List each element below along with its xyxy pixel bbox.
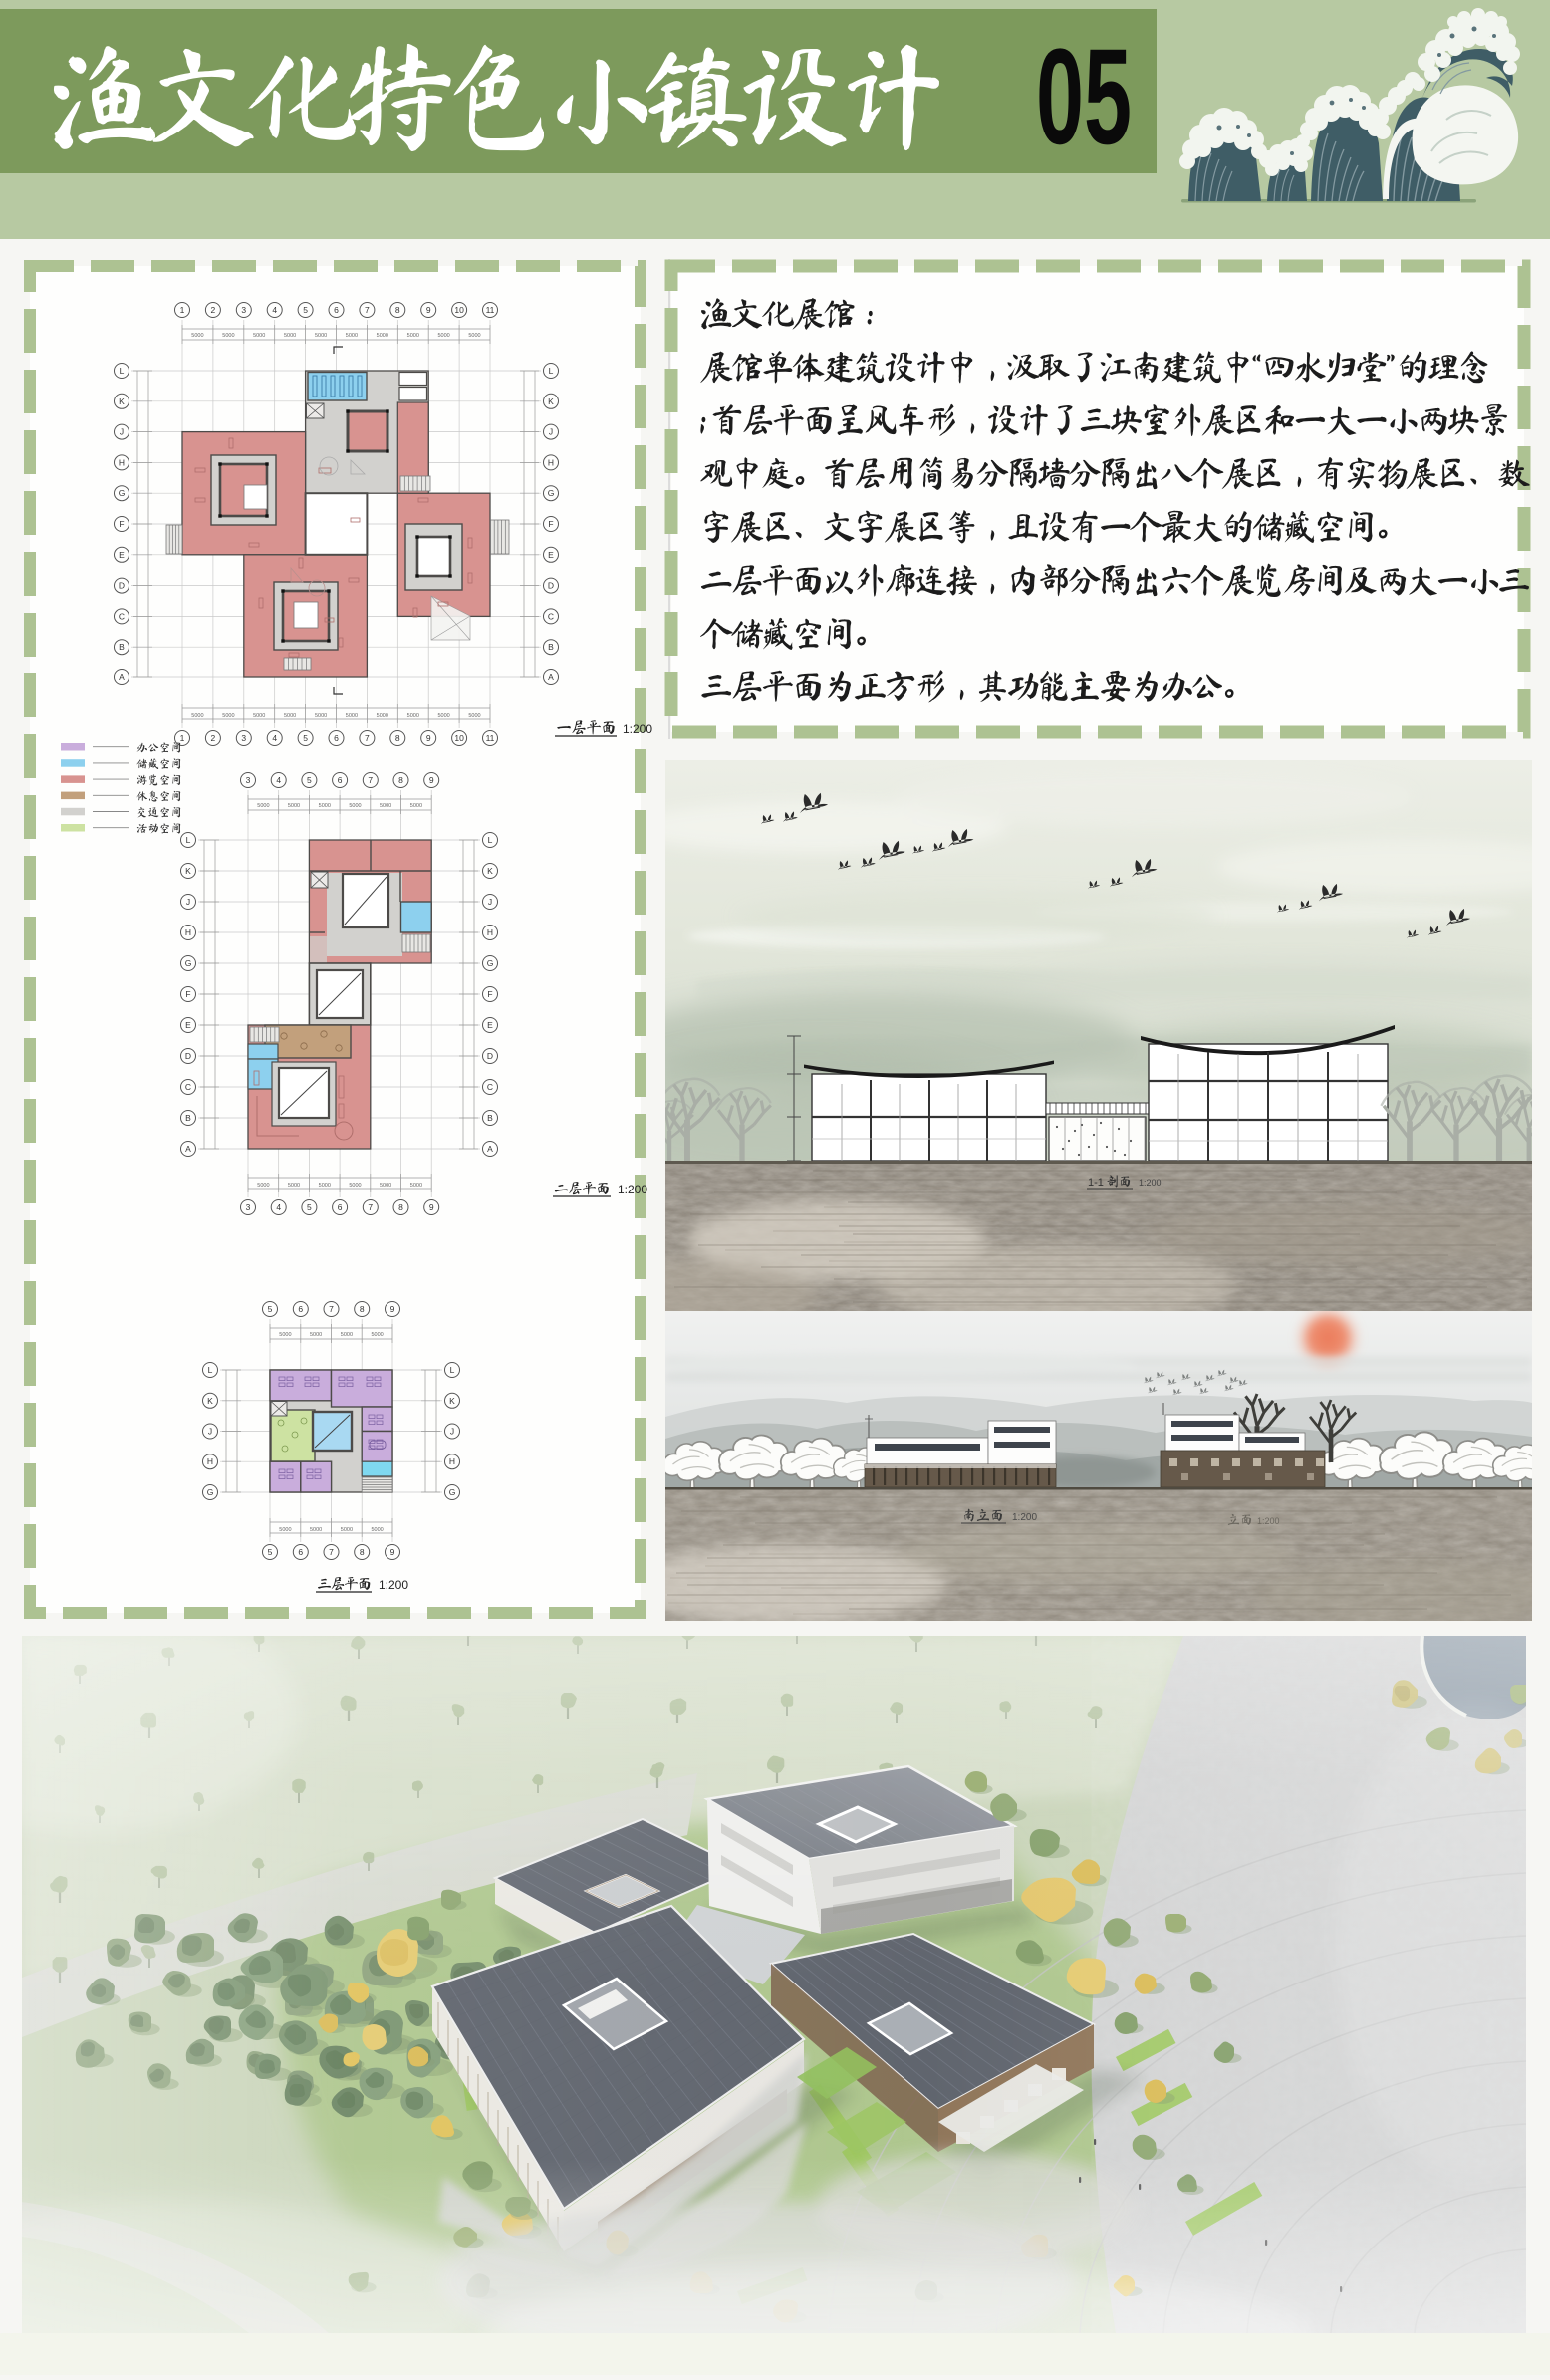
svg-text:05: 05 [1036, 21, 1132, 173]
svg-text:A: A [548, 672, 554, 682]
svg-text:5: 5 [303, 733, 308, 743]
svg-text:K: K [119, 397, 125, 406]
svg-text:3: 3 [241, 733, 246, 743]
svg-text:5000: 5000 [191, 333, 203, 339]
svg-text:C: C [487, 1082, 493, 1092]
svg-text:J: J [120, 427, 124, 437]
svg-text:D: D [185, 1051, 191, 1061]
svg-text:5000: 5000 [341, 1527, 353, 1533]
svg-text:9: 9 [429, 775, 434, 785]
svg-text:7: 7 [365, 733, 370, 743]
svg-text:4: 4 [272, 305, 277, 315]
svg-text:5000: 5000 [346, 333, 358, 339]
svg-text:G: G [449, 1487, 456, 1497]
svg-text:5000: 5000 [410, 803, 422, 809]
svg-text:5000: 5000 [468, 713, 480, 719]
svg-text:5000: 5000 [437, 333, 449, 339]
svg-text:9: 9 [390, 1547, 395, 1557]
svg-text:G: G [548, 488, 555, 498]
svg-text:5000: 5000 [315, 333, 327, 339]
svg-text:6: 6 [338, 775, 343, 785]
svg-text:B: B [185, 1113, 191, 1123]
svg-text:J: J [488, 897, 492, 907]
svg-text:11: 11 [486, 305, 495, 315]
svg-text:10: 10 [454, 305, 464, 315]
svg-text:5000: 5000 [253, 713, 265, 719]
svg-text:K: K [487, 866, 493, 876]
svg-text:1:200: 1:200 [1012, 1512, 1037, 1523]
svg-text:5000: 5000 [191, 713, 203, 719]
svg-text:1: 1 [180, 733, 185, 743]
svg-text:5000: 5000 [319, 1183, 331, 1189]
svg-text:5000: 5000 [310, 1527, 322, 1533]
svg-text:B: B [119, 642, 125, 652]
svg-text:5000: 5000 [279, 1332, 291, 1338]
svg-text:L: L [450, 1365, 455, 1375]
svg-text:5000: 5000 [410, 1183, 422, 1189]
svg-text:C: C [548, 611, 554, 621]
svg-text:5000: 5000 [349, 1183, 361, 1189]
svg-text:1:200: 1:200 [379, 1578, 408, 1592]
svg-text:5000: 5000 [380, 1183, 391, 1189]
svg-text:5000: 5000 [222, 333, 234, 339]
svg-text:1-1: 1-1 [1088, 1177, 1104, 1189]
svg-text:G: G [119, 488, 126, 498]
svg-text:H: H [119, 457, 125, 467]
svg-text:D: D [119, 581, 125, 591]
svg-text:5000: 5000 [371, 1527, 383, 1533]
svg-text:5: 5 [303, 305, 308, 315]
svg-text:6: 6 [334, 305, 339, 315]
svg-text:J: J [186, 897, 190, 907]
svg-text:2: 2 [211, 733, 216, 743]
svg-text:A: A [487, 1144, 493, 1154]
svg-text:5000: 5000 [349, 803, 361, 809]
svg-text:3: 3 [246, 775, 251, 785]
svg-text:5000: 5000 [468, 333, 480, 339]
svg-text:L: L [549, 366, 554, 376]
svg-text:5000: 5000 [315, 713, 327, 719]
svg-text:F: F [548, 519, 553, 529]
svg-text:5000: 5000 [253, 333, 265, 339]
svg-text:1:200: 1:200 [618, 1183, 647, 1196]
svg-text:1: 1 [180, 305, 185, 315]
svg-text:5000: 5000 [371, 1332, 383, 1338]
svg-text:5000: 5000 [341, 1332, 353, 1338]
svg-text:9: 9 [429, 1202, 434, 1212]
svg-text:F: F [119, 519, 124, 529]
svg-text:5000: 5000 [380, 803, 391, 809]
svg-text:K: K [207, 1396, 213, 1406]
svg-text:11: 11 [486, 733, 495, 743]
svg-text:5000: 5000 [319, 803, 331, 809]
svg-text:6: 6 [298, 1304, 303, 1314]
svg-text:5: 5 [268, 1304, 273, 1314]
svg-text:6: 6 [334, 733, 339, 743]
svg-text:B: B [548, 642, 554, 652]
svg-text:G: G [207, 1487, 214, 1497]
svg-text:E: E [185, 1020, 191, 1030]
svg-text:10: 10 [454, 733, 464, 743]
svg-text:H: H [548, 457, 554, 467]
svg-text:L: L [120, 366, 125, 376]
svg-text:6: 6 [298, 1547, 303, 1557]
svg-text:D: D [548, 581, 554, 591]
svg-text:A: A [185, 1144, 191, 1154]
svg-text:5000: 5000 [257, 803, 269, 809]
svg-text:7: 7 [329, 1547, 334, 1557]
svg-text:E: E [119, 550, 125, 560]
svg-text:H: H [487, 927, 493, 937]
svg-text:5000: 5000 [222, 713, 234, 719]
svg-text:L: L [208, 1365, 213, 1375]
svg-text:5: 5 [307, 775, 312, 785]
svg-text:7: 7 [329, 1304, 334, 1314]
svg-text:8: 8 [398, 775, 403, 785]
svg-text:7: 7 [368, 775, 373, 785]
svg-text:E: E [548, 550, 554, 560]
svg-text:1:200: 1:200 [1257, 1516, 1280, 1526]
svg-text:C: C [185, 1082, 191, 1092]
svg-text:3: 3 [241, 305, 246, 315]
svg-text:L: L [488, 835, 493, 845]
svg-text:5: 5 [268, 1547, 273, 1557]
svg-text:5000: 5000 [377, 713, 388, 719]
svg-text:8: 8 [360, 1304, 365, 1314]
svg-text:4: 4 [276, 1202, 281, 1212]
svg-text:5000: 5000 [288, 803, 300, 809]
svg-text:5: 5 [307, 1202, 312, 1212]
svg-text:1:200: 1:200 [623, 722, 652, 736]
svg-text:H: H [449, 1456, 455, 1466]
svg-text:4: 4 [276, 775, 281, 785]
svg-text:9: 9 [426, 305, 431, 315]
svg-text:5000: 5000 [288, 1183, 300, 1189]
svg-text:G: G [487, 958, 494, 968]
svg-text:3: 3 [246, 1202, 251, 1212]
svg-text:7: 7 [365, 305, 370, 315]
svg-text:F: F [185, 989, 190, 999]
svg-text:8: 8 [395, 305, 400, 315]
svg-text:F: F [487, 989, 492, 999]
svg-text:J: J [549, 427, 553, 437]
svg-text:H: H [207, 1456, 213, 1466]
svg-text:K: K [185, 866, 191, 876]
svg-text:9: 9 [426, 733, 431, 743]
svg-text:K: K [548, 397, 554, 406]
svg-text:B: B [487, 1113, 493, 1123]
svg-text:8: 8 [395, 733, 400, 743]
svg-text:5000: 5000 [377, 333, 388, 339]
svg-text:2: 2 [211, 305, 216, 315]
svg-text:A: A [119, 672, 125, 682]
svg-text:J: J [450, 1427, 454, 1437]
svg-text:J: J [208, 1427, 212, 1437]
svg-text:5000: 5000 [284, 333, 296, 339]
svg-text:4: 4 [272, 733, 277, 743]
svg-text:G: G [185, 958, 192, 968]
svg-text:5000: 5000 [279, 1527, 291, 1533]
svg-text:5000: 5000 [310, 1332, 322, 1338]
svg-text:8: 8 [398, 1202, 403, 1212]
svg-text:7: 7 [368, 1202, 373, 1212]
svg-text:1:200: 1:200 [1139, 1178, 1162, 1188]
svg-text:K: K [449, 1396, 455, 1406]
svg-text:8: 8 [360, 1547, 365, 1557]
svg-text:9: 9 [390, 1304, 395, 1314]
svg-text:E: E [487, 1020, 493, 1030]
svg-text:5000: 5000 [407, 333, 419, 339]
svg-text:L: L [186, 835, 191, 845]
svg-text:5000: 5000 [407, 713, 419, 719]
svg-text:5000: 5000 [284, 713, 296, 719]
svg-text:C: C [119, 611, 125, 621]
svg-text:6: 6 [338, 1202, 343, 1212]
svg-text:5000: 5000 [346, 713, 358, 719]
svg-text:H: H [185, 927, 191, 937]
svg-text:5000: 5000 [257, 1183, 269, 1189]
svg-text:D: D [487, 1051, 493, 1061]
svg-text:5000: 5000 [437, 713, 449, 719]
